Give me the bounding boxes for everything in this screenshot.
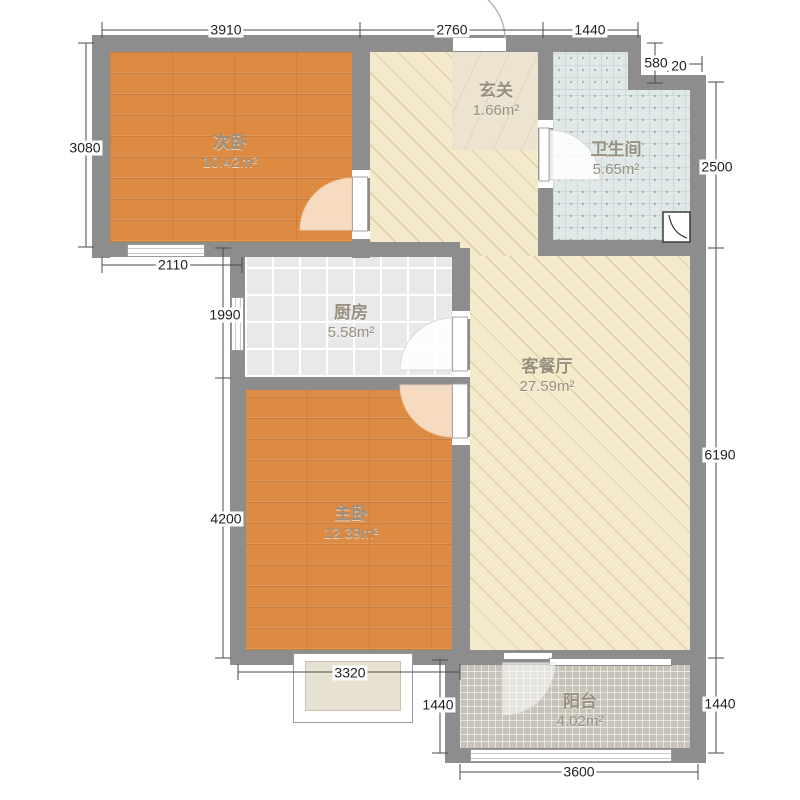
dim-left-3080: 3080 xyxy=(67,141,102,156)
bedroom2-window xyxy=(127,244,205,257)
balcony-sliding-panel xyxy=(549,658,672,666)
room-name: 客餐厅 xyxy=(519,356,574,377)
door-jamb xyxy=(452,437,470,445)
dim-left-4200: 4200 xyxy=(208,512,243,527)
entry-door-arc xyxy=(488,0,505,38)
room-area: 10.42m² xyxy=(202,153,257,172)
room-area: 5.65m² xyxy=(591,160,642,179)
wall-bedroom2-right xyxy=(352,35,370,258)
room-name: 厨房 xyxy=(328,302,375,323)
dim-step-20: 20 xyxy=(669,59,689,74)
dim-right-6190: 6190 xyxy=(702,448,737,463)
balcony-door-swing-leaf xyxy=(503,652,553,660)
room-label-secondary-bedroom: 次卧 10.42m² xyxy=(202,132,257,172)
dim-right-2500: 2500 xyxy=(699,160,734,175)
door-jamb xyxy=(538,180,553,188)
room-area: 12.39m² xyxy=(323,524,378,543)
wall-living-left xyxy=(452,248,470,652)
dim-top-3910: 3910 xyxy=(208,23,243,38)
room-label-entry-hall: 玄关 1.66m² xyxy=(473,80,520,120)
bathroom-floor-upper xyxy=(553,52,628,90)
room-label-master-bedroom: 主卧 12.39m² xyxy=(323,503,378,543)
room-label-balcony: 阳台 4.02m² xyxy=(557,691,604,731)
room-name: 卫生间 xyxy=(591,139,642,160)
door-jamb xyxy=(352,170,370,178)
dim-top-2760: 2760 xyxy=(434,23,469,38)
dim-balcony-left-1440: 1440 xyxy=(420,698,455,713)
dim-top-1440: 1440 xyxy=(572,23,607,38)
wall-bathroom-left xyxy=(538,35,553,248)
room-label-bathroom: 卫生间 5.65m² xyxy=(591,139,642,179)
wall-bathroom-bottom xyxy=(538,240,706,256)
wall-kitchen-bottom xyxy=(230,377,460,390)
wall-notch-vertical xyxy=(628,35,641,90)
door-jamb xyxy=(452,311,470,319)
kitchen-window xyxy=(231,297,244,351)
entry-door-leaf xyxy=(452,37,507,52)
room-name: 阳台 xyxy=(557,691,604,712)
dim-bottom-3600: 3600 xyxy=(561,765,596,780)
room-area: 5.58m² xyxy=(328,323,375,342)
dim-right-1440: 1440 xyxy=(702,697,737,712)
room-name: 玄关 xyxy=(473,80,520,101)
room-area: 4.02m² xyxy=(557,712,604,731)
balcony-window xyxy=(470,749,672,762)
room-label-kitchen: 厨房 5.58m² xyxy=(328,302,375,342)
dim-master-bottom-3320: 3320 xyxy=(332,666,367,681)
door-jamb xyxy=(452,370,470,377)
room-name: 主卧 xyxy=(323,503,378,524)
floor-plan-canvas: 次卧 10.42m² 玄关 1.66m² 卫生间 5.65m² 厨房 5.58m… xyxy=(0,0,800,800)
room-label-living-dining: 客餐厅 27.59m² xyxy=(519,356,574,396)
room-name: 次卧 xyxy=(202,132,257,153)
dim-left-2110: 2110 xyxy=(156,258,190,273)
dim-step-580: 580 xyxy=(642,56,669,71)
door-jamb xyxy=(352,231,370,239)
room-area: 1.66m² xyxy=(473,101,520,120)
room-area: 27.59m² xyxy=(519,377,574,396)
living-dining-floor-right xyxy=(470,256,690,650)
door-jamb xyxy=(538,120,553,128)
dim-left-1990: 1990 xyxy=(207,308,242,323)
